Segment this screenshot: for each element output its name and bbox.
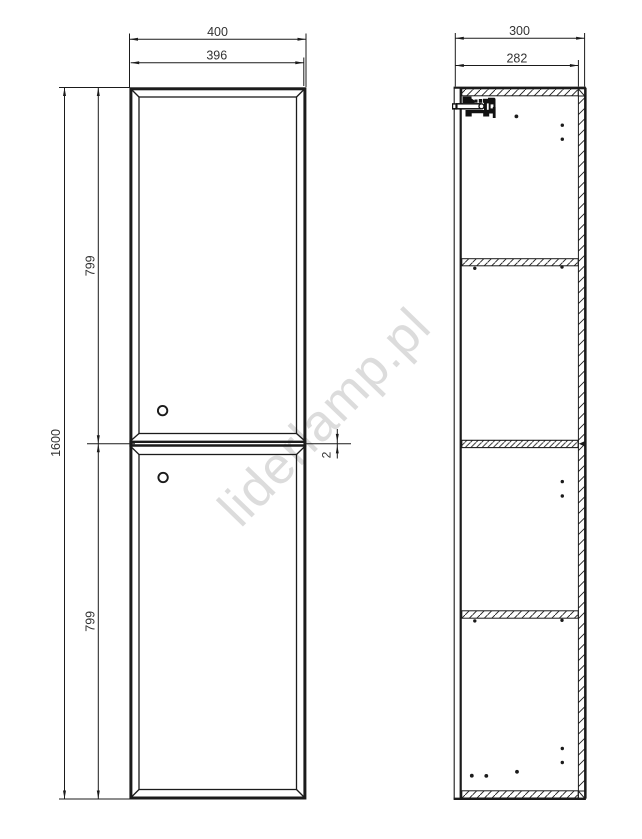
svg-text:300: 300 (509, 24, 530, 38)
svg-text:396: 396 (206, 49, 227, 63)
svg-text:799: 799 (83, 611, 97, 632)
svg-text:400: 400 (207, 25, 228, 39)
svg-text:2: 2 (320, 451, 334, 458)
svg-text:799: 799 (83, 255, 97, 276)
svg-text:1600: 1600 (49, 429, 63, 457)
svg-text:282: 282 (506, 51, 527, 65)
